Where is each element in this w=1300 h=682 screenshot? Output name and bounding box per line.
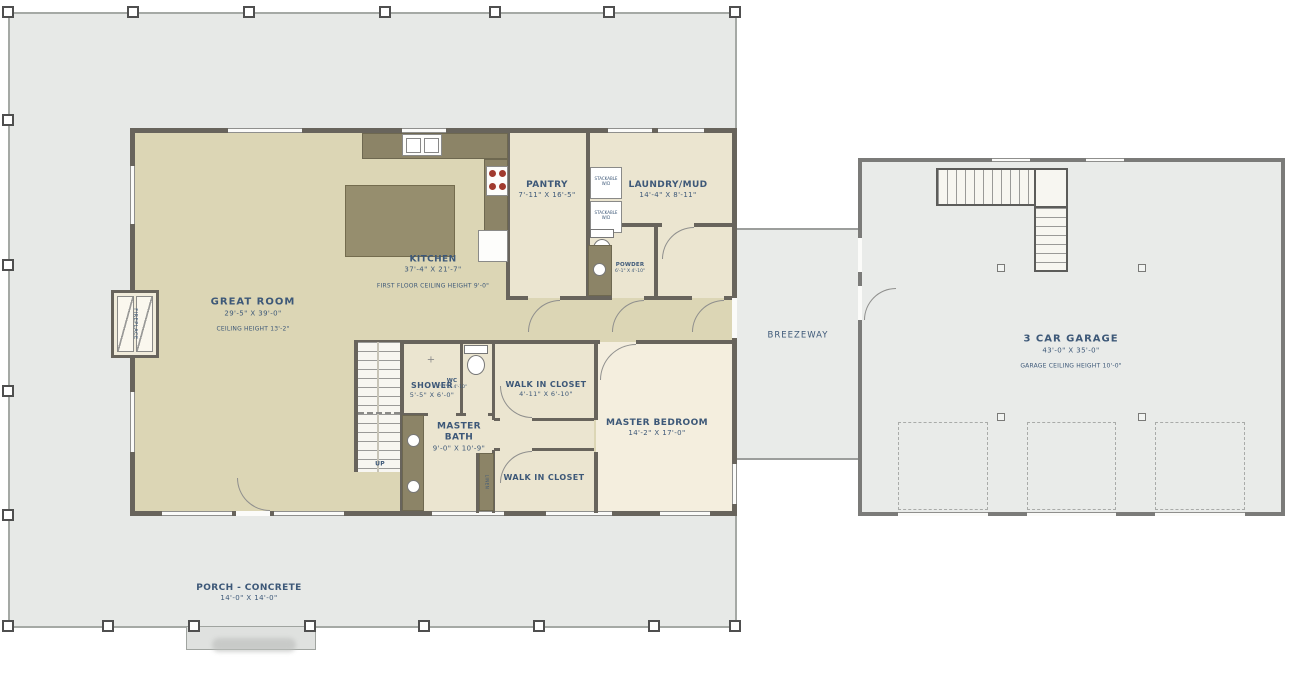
room-dims: 2'-7" X 4'-10" xyxy=(437,385,467,391)
pantry-floor xyxy=(508,133,588,298)
kitchen-island xyxy=(345,185,455,257)
porch-post xyxy=(304,620,316,632)
breezeway-door-opening xyxy=(732,298,737,338)
range-cooktop xyxy=(486,166,508,196)
porch-post xyxy=(648,620,660,632)
porch-post xyxy=(2,509,14,521)
window xyxy=(162,511,232,516)
garage-door-opening xyxy=(1155,512,1245,516)
porch-post xyxy=(489,6,501,18)
stairs-up-label: UP xyxy=(375,460,385,468)
room-name: BREEZEWAY xyxy=(768,331,829,342)
window xyxy=(130,166,135,224)
great-room-label: GREAT ROOM 29'-5" X 39'-0" CEILING HEIGH… xyxy=(211,297,296,334)
room-note: GARAGE CEILING HEIGHT 10'-0" xyxy=(1020,363,1121,371)
room-name: WALK IN CLOSET xyxy=(506,380,587,390)
room-dims: 37'-4" X 21'-7" xyxy=(377,266,489,275)
passage-floor xyxy=(494,420,594,450)
toilet xyxy=(590,229,614,238)
wall-shower-bottom xyxy=(456,413,466,416)
breezeway-floor xyxy=(737,228,860,460)
porch-label: PORCH - CONCRETE 14'-0" X 14'-0" xyxy=(196,583,301,603)
porch-post xyxy=(603,6,615,18)
room-dims: 9'-0" X 10'-9" xyxy=(427,444,491,453)
room-note: FIRST FLOOR CEILING HEIGHT 9'-0" xyxy=(377,282,489,290)
pantry-label: PANTRY 7'-11" X 16'-5" xyxy=(518,180,575,200)
breezeway-opening xyxy=(858,238,862,272)
mud-closet-floor xyxy=(656,225,732,298)
room-name: 3 CAR GARAGE xyxy=(1020,334,1121,347)
window xyxy=(546,511,612,516)
room-dims: 7'-11" X 16'-5" xyxy=(518,191,575,200)
porch-post xyxy=(2,385,14,397)
stairs-break-line xyxy=(358,412,400,414)
garage-column xyxy=(997,264,1005,272)
room-name: LAUNDRY/MUD xyxy=(628,180,707,191)
wall-bedroom-left xyxy=(594,452,598,513)
vanity-sink xyxy=(407,434,420,447)
kitchen-label: KITCHEN 37'-4" X 21'-7" FIRST FLOOR CEIL… xyxy=(377,254,489,290)
window xyxy=(608,128,652,133)
porch-step-shadow xyxy=(212,638,296,652)
laundry-label: LAUNDRY/MUD 14'-4" X 8'-11" xyxy=(628,180,707,200)
room-dims: 6'-1" X 4'-10" xyxy=(615,269,645,275)
room-dims: 5'-5" X 6'-0" xyxy=(410,391,455,399)
porch-post xyxy=(2,114,14,126)
porch-post xyxy=(2,620,14,632)
room-name: MASTER BATH xyxy=(427,421,491,444)
porch-post xyxy=(2,6,14,18)
wall-wc-closet xyxy=(492,342,495,420)
stairs-stringer xyxy=(377,342,379,472)
porch-post xyxy=(243,6,255,18)
porch-post xyxy=(127,6,139,18)
up-text: UP xyxy=(375,460,385,468)
garage-stairs-run xyxy=(936,168,1036,206)
room-name: MASTER BEDROOM xyxy=(606,418,708,429)
wall-bedroom-left xyxy=(594,340,598,420)
wall-hall-top xyxy=(506,296,528,300)
window xyxy=(130,392,135,452)
wall-hall-top xyxy=(644,296,692,300)
toilet-bowl xyxy=(467,355,485,375)
garage-side-door-opening xyxy=(858,286,862,320)
porch-post xyxy=(418,620,430,632)
window xyxy=(228,128,302,133)
garage-column xyxy=(997,413,1005,421)
room-dims: 29'-5" X 39'-0" xyxy=(211,309,296,318)
kitchen-sink xyxy=(402,134,442,156)
window xyxy=(274,511,344,516)
floor-plan: STACKABLE W/D STACKABLE W/D + FIREPLACE … xyxy=(0,0,1300,682)
wall-wic-lower-top xyxy=(532,448,594,451)
wall-wic-upper-bottom xyxy=(532,418,594,421)
garage-column xyxy=(1138,413,1146,421)
toilet xyxy=(464,345,488,354)
fireplace-label: FIREPLACE xyxy=(132,308,138,339)
room-name: GREAT ROOM xyxy=(211,297,296,310)
wall-hall-top xyxy=(560,296,612,300)
wall-suite-top xyxy=(636,340,732,344)
porch-post xyxy=(533,620,545,632)
wall-hall-top xyxy=(724,296,732,300)
garage-bay xyxy=(898,422,988,510)
garage-door-opening xyxy=(898,512,988,516)
window xyxy=(660,511,710,516)
garage-bay xyxy=(1027,422,1116,510)
stackable-label: STACKABLE W/D xyxy=(595,176,618,186)
window xyxy=(732,464,737,504)
master-bath-label: MASTER BATH 9'-0" X 10'-9" xyxy=(427,421,491,452)
porch-post xyxy=(188,620,200,632)
room-name: WALK IN CLOSET xyxy=(504,473,585,483)
porch-post xyxy=(379,6,391,18)
wall-shower-bottom xyxy=(488,413,495,416)
main-stairs xyxy=(358,342,400,472)
wic-upper-label: WALK IN CLOSET 4'-11" X 6'-10" xyxy=(506,380,587,398)
wall-wic-lower-top xyxy=(494,448,500,451)
powder-sink xyxy=(593,263,606,276)
garage-bay xyxy=(1155,422,1245,510)
bath-vanity xyxy=(402,415,424,511)
porch-post xyxy=(2,259,14,271)
garage-stairs-run xyxy=(1034,206,1068,272)
garage-stairs-landing xyxy=(1034,168,1068,208)
vanity-sink xyxy=(407,480,420,493)
stackable-washer-dryer: STACKABLE W/D xyxy=(590,167,622,199)
linen-label: LINEN xyxy=(485,475,490,489)
porch-post xyxy=(102,620,114,632)
room-dims: 4'-11" X 6'-10" xyxy=(506,390,587,398)
room-dims: 14'-0" X 14'-0" xyxy=(196,594,301,603)
breezeway-label: BREEZEWAY xyxy=(768,331,829,342)
room-name: WC xyxy=(437,378,467,385)
porch-post xyxy=(729,6,741,18)
wall-powder-mud xyxy=(654,225,658,300)
garage-window xyxy=(992,158,1030,162)
room-name: POWDER xyxy=(615,262,645,269)
wall-laundry-bottom xyxy=(694,223,732,227)
shower-light-symbol: + xyxy=(427,355,435,366)
wic-lower-label: WALK IN CLOSET xyxy=(504,473,585,483)
garage-door-opening xyxy=(1027,512,1116,516)
wall-wic-upper-bottom xyxy=(494,418,500,421)
garage-label: 3 CAR GARAGE 43'-0" X 35'-0" GARAGE CEIL… xyxy=(1020,334,1121,371)
room-dims: 43'-0" X 35'-0" xyxy=(1020,346,1121,355)
wc-label: WC 2'-7" X 4'-10" xyxy=(437,378,467,391)
window xyxy=(658,128,704,133)
room-name: PORCH - CONCRETE xyxy=(196,583,301,594)
front-door-opening xyxy=(236,511,270,516)
powder-label: POWDER 6'-1" X 4'-10" xyxy=(615,262,645,275)
room-name: KITCHEN xyxy=(377,254,489,265)
room-note: CEILING HEIGHT 13'-2" xyxy=(211,326,296,334)
master-bedroom-label: MASTER BEDROOM 14'-2" X 17'-0" xyxy=(606,418,708,438)
garage-column xyxy=(1138,264,1146,272)
room-name: PANTRY xyxy=(518,180,575,191)
porch-post xyxy=(729,620,741,632)
room-dims: 14'-2" X 17'-0" xyxy=(606,429,708,438)
room-dims: 14'-4" X 8'-11" xyxy=(628,191,707,200)
stackable-label: STACKABLE W/D xyxy=(595,210,618,220)
garage-window xyxy=(1086,158,1124,162)
